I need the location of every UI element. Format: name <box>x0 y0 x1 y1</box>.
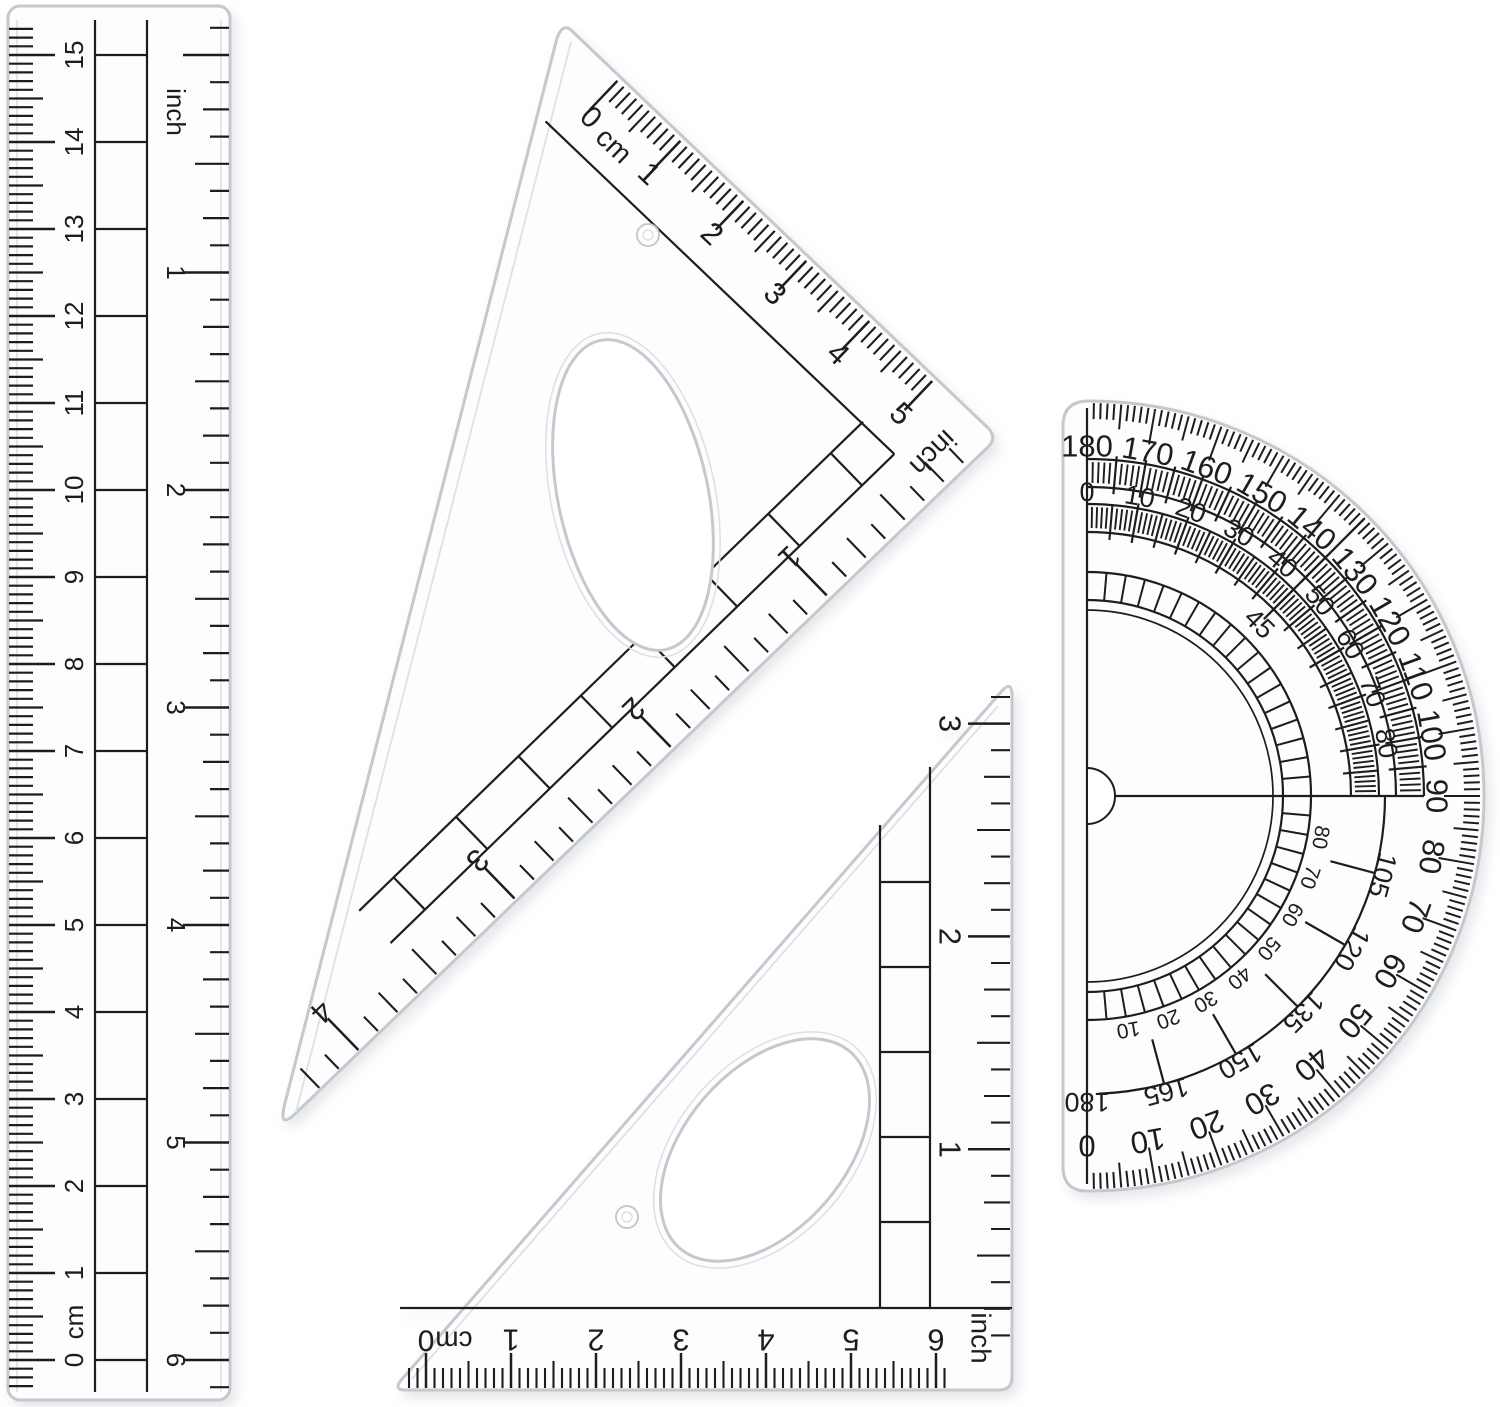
tri2-inch-number: 3 <box>933 715 968 732</box>
protractor-outer-label: 90 <box>1420 779 1455 813</box>
ruler-inch-number: 6 <box>161 1353 191 1367</box>
ruler-cm-number: 13 <box>59 215 89 244</box>
ruler-cm-number: 12 <box>59 302 89 331</box>
protractor-outer-label: 0 <box>1078 1129 1095 1164</box>
protractor-inner-label: 10 <box>1115 1016 1142 1043</box>
ruler-inch-number: 1 <box>161 265 191 279</box>
ruler-cm-number: 3 <box>59 1092 89 1106</box>
tri2-cm-number: 2 <box>587 1323 604 1358</box>
protractor-middle-bottom-label: 180 <box>1064 1087 1109 1117</box>
ruler-cm-number: 6 <box>59 831 89 845</box>
ruler-inch-number: 4 <box>161 918 191 932</box>
tri2-inch-number: 1 <box>933 1141 968 1158</box>
ruler-cm-number: 7 <box>59 744 89 758</box>
ruler-inch-unit-label: inch <box>161 88 191 136</box>
protractor-middle-top-label: 10 <box>1122 479 1157 514</box>
ruler-cm-number: 2 <box>59 1179 89 1193</box>
ruler: 0cm123456789101112131415inch123456 <box>8 6 230 1400</box>
tri2-cm-number: 6 <box>927 1323 944 1358</box>
ruler-inch-number: 3 <box>161 700 191 714</box>
ruler-cm-number: 11 <box>59 390 89 417</box>
ruler-cm-number: 10 <box>59 476 89 505</box>
geometry-set-photo: 0cm123456789101112131415inch123456 0cm12… <box>0 0 1500 1407</box>
protractor-middle-top-label: 0 <box>1079 477 1094 507</box>
tri2-cm-number: 4 <box>757 1323 774 1358</box>
ruler-cm-zero-label: 0 <box>59 1353 89 1367</box>
ruler-cm-number: 8 <box>59 657 89 671</box>
tri2-cm-unit-label: cm <box>435 1326 472 1357</box>
protractor-inner-label: 80 <box>1307 824 1334 851</box>
ruler-cm-number: 5 <box>59 918 89 932</box>
tri2-inch-unit-label: inch <box>966 1312 997 1363</box>
ruler-cm-number: 1 <box>59 1266 89 1280</box>
ruler-cm-unit-label: cm <box>59 1305 89 1340</box>
tri2-inch-number: 2 <box>933 928 968 945</box>
ruler-cm-number: 15 <box>59 41 89 70</box>
ruler-cm-number: 14 <box>59 128 89 157</box>
protractor-middle-top-label: 80 <box>1369 726 1404 761</box>
geometry-set-canvas: 0cm123456789101112131415inch123456 0cm12… <box>0 0 1500 1407</box>
protractor-outer-label: 180 <box>1061 429 1113 464</box>
tri2-cm-zero-label: 0 <box>418 1324 435 1357</box>
protractor-outer-label: 10 <box>1128 1120 1168 1160</box>
ruler-cm-number: 4 <box>59 1005 89 1019</box>
ruler-inch-number: 5 <box>161 1135 191 1149</box>
ruler-inch-number: 2 <box>161 483 191 497</box>
ruler-cm-number: 9 <box>59 570 89 584</box>
protractor-outer-label: 80 <box>1411 837 1451 877</box>
tri2-cm-number: 3 <box>672 1323 689 1358</box>
tri2-cm-number: 5 <box>842 1323 859 1358</box>
protractor: 1801701601501401301201101009080706050403… <box>1061 401 1484 1191</box>
tri2-cm-number: 1 <box>502 1323 519 1358</box>
